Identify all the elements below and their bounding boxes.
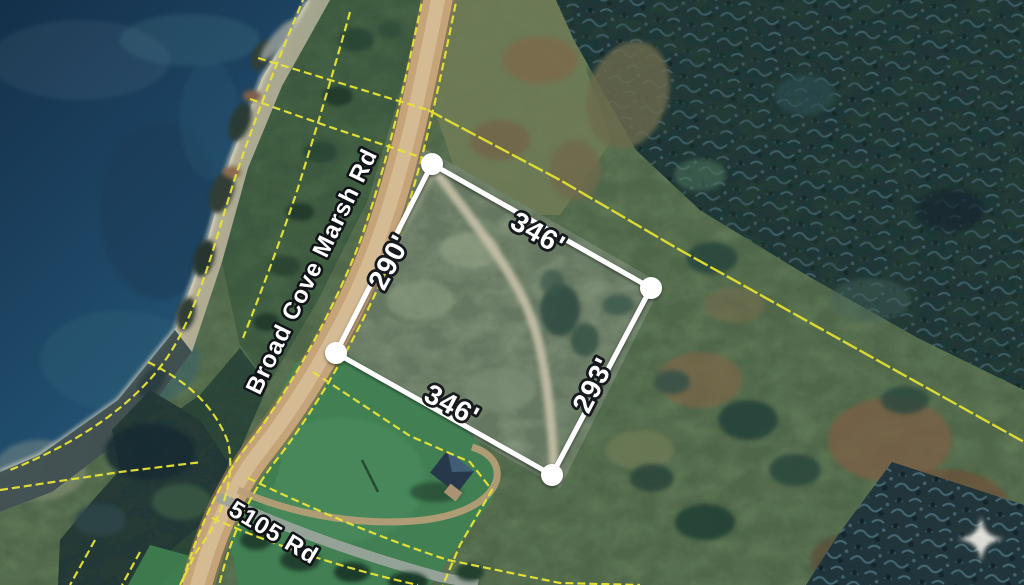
parcel-corner-marker-bottom[interactable] [541, 464, 563, 486]
parcel-corner-marker-left[interactable] [325, 342, 347, 364]
terrain [0, 0, 1024, 585]
parcel-corner-marker-top[interactable] [421, 153, 443, 175]
map-canvas: 346' 290' 346' 293' Broad Cove Marsh Rd … [0, 0, 1024, 585]
satellite-map[interactable]: 346' 290' 346' 293' Broad Cove Marsh Rd … [0, 0, 1024, 585]
parcel-corner-marker-right[interactable] [640, 277, 662, 299]
